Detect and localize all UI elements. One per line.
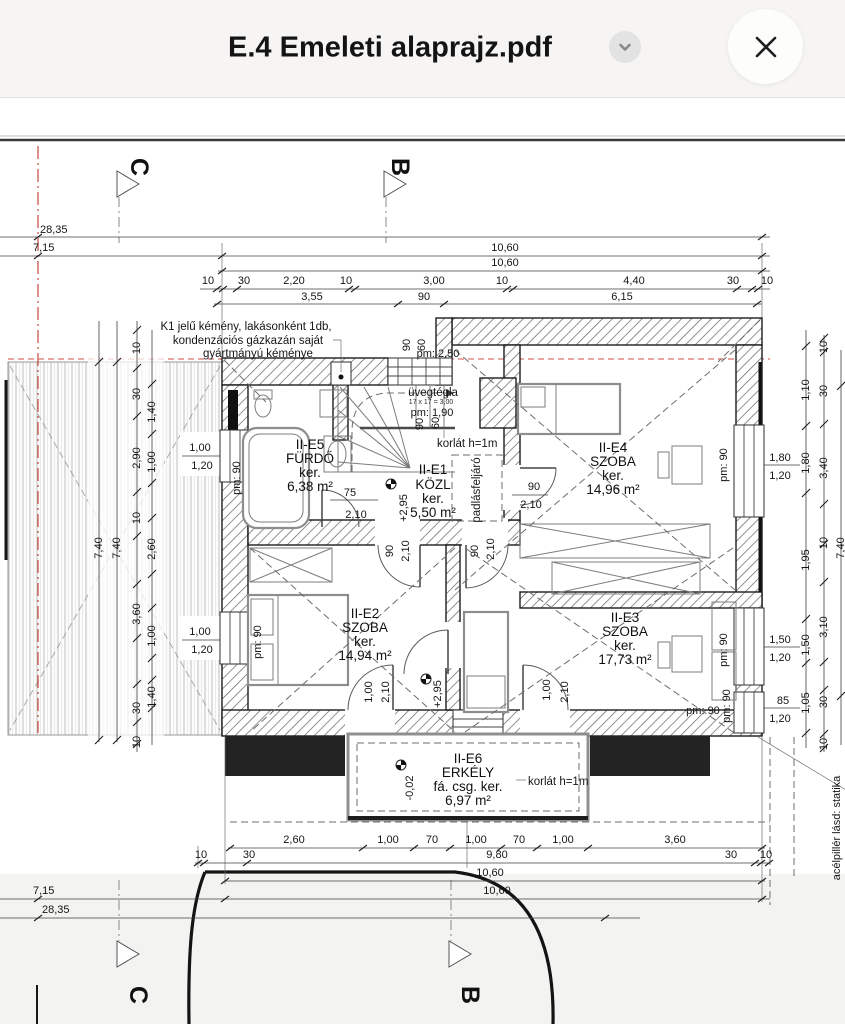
room-label-bedroom-e3: II-E3 SZOBA ker. 17,73 m²	[598, 610, 652, 667]
dim-label: 1,00	[552, 834, 573, 846]
railing-label: korlát h=1m	[528, 776, 588, 788]
dim-label: 1,80	[769, 452, 790, 464]
level-label: +2,95	[432, 680, 444, 708]
dim-label: 7,40	[835, 537, 845, 558]
dim-label: 2,10	[400, 540, 412, 561]
dim-label: 9,80	[486, 849, 507, 861]
dim-label: 7,15	[33, 242, 54, 254]
dim-label: 28,35	[40, 224, 68, 236]
dim-label: 90	[418, 291, 430, 303]
dim-label: 30	[725, 849, 737, 861]
dim-label: 90	[528, 481, 540, 493]
dim-label: 10	[818, 537, 830, 549]
dim-label: 2,10	[380, 681, 392, 702]
dim-label: 10,60	[491, 242, 519, 254]
chair	[658, 452, 669, 478]
attic-access-label: padlásfeljáró	[471, 457, 483, 522]
svg-text:FÜRDŐ: FÜRDŐ	[286, 451, 334, 466]
svg-text:II-E3: II-E3	[611, 610, 640, 625]
svg-text:KÖZL: KÖZL	[415, 477, 451, 492]
svg-text:ERKÉLY: ERKÉLY	[442, 765, 494, 780]
dim-label: 10	[340, 275, 352, 287]
close-button[interactable]	[728, 9, 803, 84]
level-label: -0,02	[404, 775, 416, 800]
dim-label: 30	[818, 696, 830, 708]
dim-label: 90	[384, 545, 396, 557]
svg-text:II-E5: II-E5	[296, 437, 325, 452]
svg-text:17,73 m²: 17,73 m²	[598, 652, 652, 667]
dim-label: 7,15	[33, 885, 54, 897]
dim-label: 2,10	[485, 538, 497, 559]
svg-text:14,94 m²: 14,94 m²	[338, 648, 392, 663]
dim-label: 10	[131, 342, 143, 354]
dim-label: 1,20	[769, 470, 790, 482]
dim-label: 7,40	[93, 537, 105, 558]
dim-label: 2,10	[520, 499, 541, 511]
dim-label: 1,00	[377, 834, 398, 846]
dim-label: 30	[727, 275, 739, 287]
dim-label: 90	[401, 339, 413, 351]
svg-text:ker.: ker.	[422, 491, 444, 506]
dim-label: 1,40	[146, 401, 158, 422]
chair	[658, 642, 670, 668]
dim-label: 30	[238, 275, 250, 287]
dim-label: 10,60	[491, 257, 519, 269]
close-icon	[748, 29, 784, 65]
steel-column-note: acélpillér lásd: statika	[831, 775, 843, 880]
svg-text:SZOBA: SZOBA	[342, 620, 388, 635]
svg-text:ker.: ker.	[602, 468, 624, 483]
dim-label: 70	[513, 834, 525, 846]
section-letter-b: B	[386, 158, 414, 176]
svg-text:II-E1: II-E1	[419, 462, 448, 477]
section-letter-c-bottom: C	[124, 986, 152, 1004]
dim-label: 10,60	[476, 867, 504, 879]
document-title: E.4 Emeleti alaprajz.pdf	[228, 32, 552, 65]
dim-label: 3,40	[818, 457, 830, 478]
dim-label: 1,20	[191, 644, 212, 656]
dim-label: 2,90	[131, 447, 143, 468]
dim-label: 85	[777, 695, 789, 707]
preview-header: E.4 Emeleti alaprajz.pdf	[0, 0, 845, 98]
glassblock-label: üvegtégla	[408, 387, 458, 399]
svg-text:ker.: ker.	[354, 634, 376, 649]
level-marker-icon	[421, 674, 431, 684]
dim-label: 30	[818, 385, 830, 397]
toilet	[255, 395, 271, 417]
dim-label: 1,50	[800, 634, 812, 655]
dim-label: 30	[131, 702, 143, 714]
dim-label: pm: 90	[718, 448, 730, 482]
dim-label: 2,20	[283, 275, 304, 287]
dim-label: 30	[131, 388, 143, 400]
svg-text:fá. csg. ker.: fá. csg. ker.	[433, 779, 502, 794]
dim-label: pm: 90	[252, 625, 264, 659]
dim-label: 1,80	[800, 452, 812, 473]
svg-text:6,97 m²: 6,97 m²	[445, 793, 491, 808]
desk	[672, 446, 702, 484]
svg-text:ker.: ker.	[299, 465, 321, 480]
svg-text:II-E4: II-E4	[599, 440, 628, 455]
dim-label: 1,00	[189, 442, 210, 454]
dim-label: 90	[414, 418, 426, 430]
dim-label: 3,60	[664, 834, 685, 846]
svg-text:II-E2: II-E2	[351, 606, 380, 621]
dim-label: 28,35	[42, 904, 70, 916]
level-marker-icon	[386, 479, 396, 489]
svg-text:SZOBA: SZOBA	[602, 624, 648, 639]
section-letter-b-bottom: B	[456, 986, 484, 1004]
dim-label: 6,15	[611, 291, 632, 303]
dim-label: 1,00	[541, 679, 553, 700]
dim-label: 3,55	[301, 291, 322, 303]
dim-label: pm: 2,50	[417, 348, 460, 360]
svg-text:5,50 m²: 5,50 m²	[410, 505, 456, 520]
dim-label: 10,60	[483, 885, 511, 897]
dim-label: 3,00	[423, 275, 444, 287]
svg-text:SZOBA: SZOBA	[590, 454, 636, 469]
dim-label: 10	[760, 849, 772, 861]
dim-label: 1,20	[191, 460, 212, 472]
dim-label: 10	[818, 341, 830, 353]
dim-label: 10	[496, 275, 508, 287]
bed	[518, 384, 620, 434]
dim-label: 4,40	[623, 275, 644, 287]
dim-label: 70	[426, 834, 438, 846]
dim-label: 1,00	[146, 451, 158, 472]
svg-text:II-E6: II-E6	[454, 751, 483, 766]
level-marker-icon	[396, 760, 406, 770]
room-label-hall: II-E1 KÖZL ker. 5,50 m²	[410, 462, 456, 520]
pdf-preview-window: C B C B 28,35 7,15 10,	[0, 0, 845, 1024]
dim-label: 90	[469, 545, 481, 557]
svg-text:14,96 m²: 14,96 m²	[586, 482, 640, 497]
dim-label: 10	[131, 736, 143, 748]
bed	[464, 612, 508, 712]
glassblock-calc: 17 x 17 = 3,00	[409, 399, 454, 406]
chevron-down-icon	[616, 38, 634, 56]
chimney-note: kondenzációs gázkazán saját	[173, 335, 324, 347]
dim-label: 1,10	[800, 379, 812, 400]
dim-label: 2,10	[345, 509, 366, 521]
dim-label: 1,20	[769, 652, 790, 664]
dim-label: 3,60	[131, 603, 143, 624]
floorplan-drawing: C B C B 28,35 7,15 10,	[0, 0, 845, 1024]
dim-label: 1,20	[769, 713, 790, 725]
dim-label: 1,05	[800, 692, 812, 713]
glassblock-pm: pm: 1,90	[411, 407, 454, 419]
dim-label: pm: 90	[718, 633, 730, 667]
level-label: +2,95	[398, 494, 410, 522]
svg-text:6,38 m²: 6,38 m²	[287, 479, 333, 494]
dim-label: 75	[344, 487, 356, 499]
dim-label: 3,10	[818, 616, 830, 637]
chimney-note: K1 jelű kémény, lakásonként 1db,	[160, 321, 331, 333]
dim-label: 10	[195, 849, 207, 861]
dim-label: pm: 90	[231, 461, 243, 495]
dim-label: 2,10	[559, 681, 571, 702]
dim-label: 1,50	[769, 634, 790, 646]
svg-text:ker.: ker.	[614, 638, 636, 653]
section-letter-c: C	[125, 158, 153, 176]
desk	[672, 636, 702, 672]
dim-label: 10	[818, 738, 830, 750]
chimney-note: gyártmányú kéménye	[203, 348, 313, 360]
dim-label: 1,95	[800, 549, 812, 570]
dim-label: 10	[202, 275, 214, 287]
dim-label: 1,00	[189, 626, 210, 638]
dimensions-right: 1,10 1,80 1,95 1,50 1,05 10 30 3,40 10 3…	[758, 330, 845, 752]
title-dropdown-button[interactable]	[609, 31, 641, 63]
room-label-bedroom-e4: II-E4 SZOBA ker. 14,96 m²	[586, 440, 640, 497]
dim-label: pm: 90	[686, 705, 720, 717]
dim-label: 2,60	[146, 538, 158, 559]
dim-label: 2,60	[283, 834, 304, 846]
dim-label: 1,00	[363, 681, 375, 702]
railing-label: korlát h=1m	[437, 438, 497, 450]
dim-label: 10	[761, 275, 773, 287]
dim-label: 30	[243, 849, 255, 861]
dim-label: 1,40	[146, 686, 158, 707]
dim-label: 1,00	[146, 625, 158, 646]
dim-label: 7,40	[111, 537, 123, 558]
dim-label: 10	[131, 512, 143, 524]
dim-label: 1,00	[465, 834, 486, 846]
dim-label: pm: 90	[721, 689, 733, 723]
